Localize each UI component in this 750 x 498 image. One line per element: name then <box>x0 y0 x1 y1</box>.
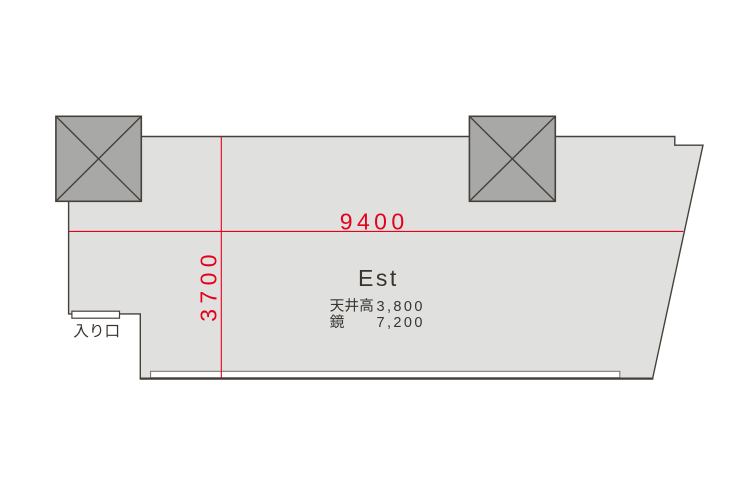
svg-text:7,200: 7,200 <box>377 315 425 331</box>
svg-text:Est: Est <box>358 265 399 291</box>
svg-text:9400: 9400 <box>340 209 409 235</box>
svg-text:3700: 3700 <box>196 249 222 322</box>
svg-text:3,800: 3,800 <box>377 299 425 315</box>
